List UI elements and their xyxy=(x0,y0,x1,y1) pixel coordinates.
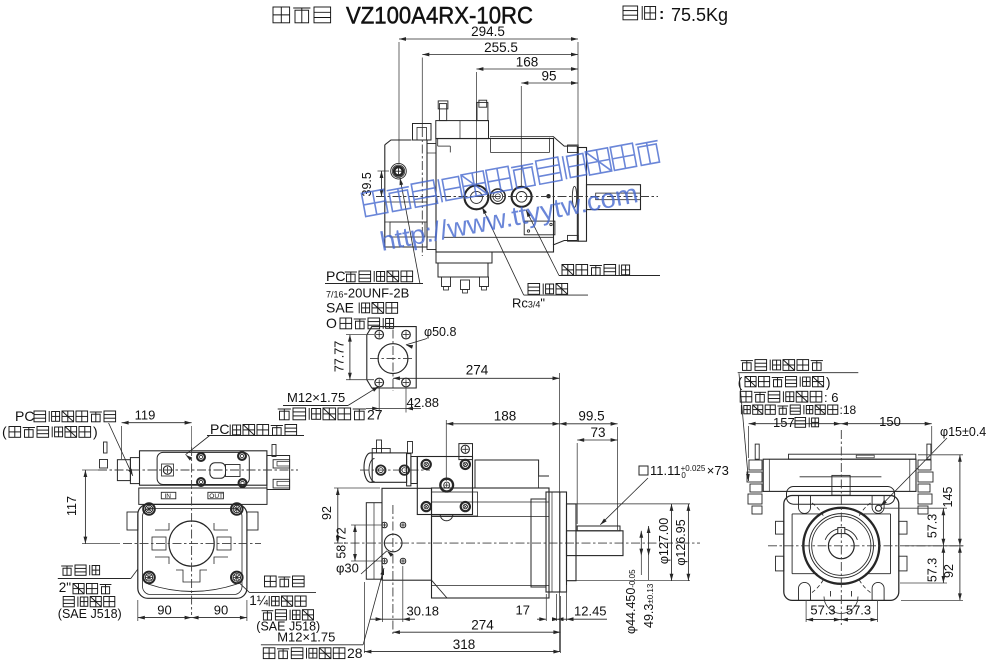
svg-text:28: 28 xyxy=(347,645,363,661)
svg-text::: : xyxy=(659,6,664,23)
svg-text:92: 92 xyxy=(942,564,956,578)
svg-text:145: 145 xyxy=(941,487,955,508)
svg-text:77.77: 77.77 xyxy=(333,341,347,372)
svg-text:φ15±0.4: φ15±0.4 xyxy=(940,425,986,439)
svg-text:PC: PC xyxy=(15,408,34,424)
svg-text:(: ( xyxy=(2,424,7,440)
svg-text:58.72: 58.72 xyxy=(335,527,349,558)
svg-text:IN: IN xyxy=(165,493,172,500)
svg-text:57.3: 57.3 xyxy=(810,603,835,618)
svg-text:150: 150 xyxy=(879,414,901,429)
svg-text:119: 119 xyxy=(135,408,156,423)
svg-text:O: O xyxy=(326,315,337,331)
svg-text:255.5: 255.5 xyxy=(484,40,518,55)
svg-text:274: 274 xyxy=(471,618,494,633)
svg-text:157: 157 xyxy=(773,415,795,430)
svg-text:30.18: 30.18 xyxy=(407,604,440,619)
svg-text:42.88: 42.88 xyxy=(407,395,440,410)
svg-text:117: 117 xyxy=(65,496,79,516)
svg-text:): ) xyxy=(826,375,831,390)
svg-text:168: 168 xyxy=(516,55,539,70)
svg-text:92: 92 xyxy=(320,506,334,520)
svg-text:φ126.95: φ126.95 xyxy=(674,519,688,565)
svg-text:188: 188 xyxy=(494,409,517,424)
svg-text:M12×1.75: M12×1.75 xyxy=(277,630,335,645)
svg-text:17: 17 xyxy=(516,603,530,618)
svg-text:57.3: 57.3 xyxy=(846,603,871,618)
svg-text:73: 73 xyxy=(590,425,605,440)
svg-text:294.5: 294.5 xyxy=(471,24,505,39)
svg-text:PC: PC xyxy=(326,268,345,284)
svg-text:274: 274 xyxy=(466,363,489,378)
svg-text:: 6: : 6 xyxy=(824,390,838,405)
svg-text:99.5: 99.5 xyxy=(578,409,604,424)
svg-text:12.45: 12.45 xyxy=(574,604,607,619)
svg-text::18: :18 xyxy=(840,403,857,417)
svg-text:90: 90 xyxy=(214,603,228,618)
svg-text:SAE: SAE xyxy=(326,300,354,316)
svg-text:φ30: φ30 xyxy=(336,561,359,576)
svg-text:75.5Kg: 75.5Kg xyxy=(671,5,728,25)
svg-text:1¼: 1¼ xyxy=(249,593,269,608)
svg-text:90: 90 xyxy=(157,603,171,618)
svg-text:M12×1.75: M12×1.75 xyxy=(287,390,345,405)
svg-text:φ127.00: φ127.00 xyxy=(657,518,671,564)
svg-text:318: 318 xyxy=(453,637,476,652)
svg-text:OUT: OUT xyxy=(209,493,223,500)
svg-text:): ) xyxy=(93,424,98,440)
svg-text:φ50.8: φ50.8 xyxy=(424,325,456,339)
svg-text:VZ100A4RX-10RC: VZ100A4RX-10RC xyxy=(346,3,533,30)
svg-text:57.3: 57.3 xyxy=(926,514,940,538)
svg-text:57.3: 57.3 xyxy=(926,558,940,582)
svg-text:2": 2" xyxy=(59,580,72,595)
svg-text:PC: PC xyxy=(210,421,229,437)
svg-text:(SAE J518): (SAE J518) xyxy=(58,607,122,621)
svg-text:95: 95 xyxy=(541,69,556,84)
